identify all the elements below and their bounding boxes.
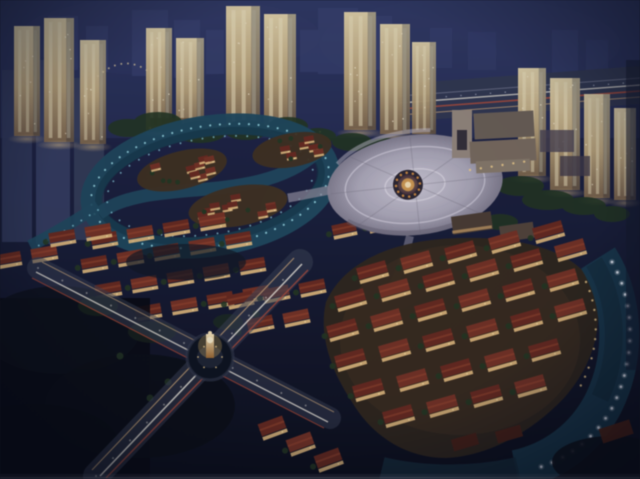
scene-canvas: Aerial night rendering of residential de… <box>0 0 640 479</box>
aerial-night-render: Aerial night rendering of residential de… <box>0 0 640 479</box>
